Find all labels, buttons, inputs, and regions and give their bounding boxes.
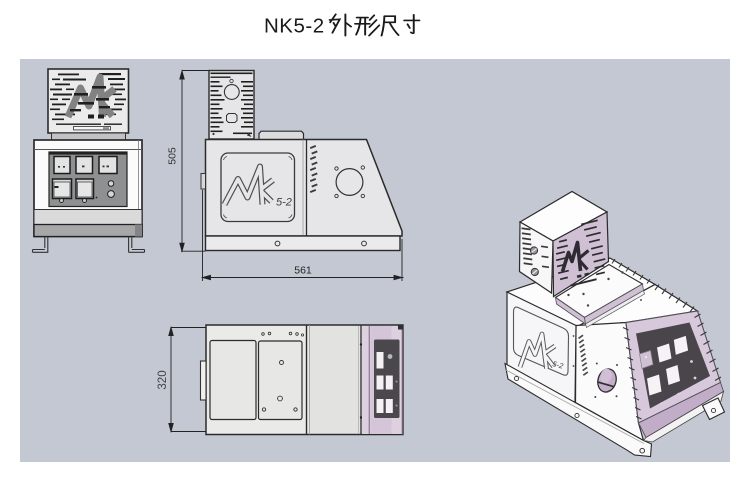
svg-text:5-2: 5-2 (276, 197, 292, 209)
svg-text:NK5-2: NK5-2 (264, 15, 325, 38)
svg-text:505: 505 (167, 147, 179, 165)
svg-text:320: 320 (157, 370, 169, 389)
svg-text:561: 561 (294, 265, 312, 277)
